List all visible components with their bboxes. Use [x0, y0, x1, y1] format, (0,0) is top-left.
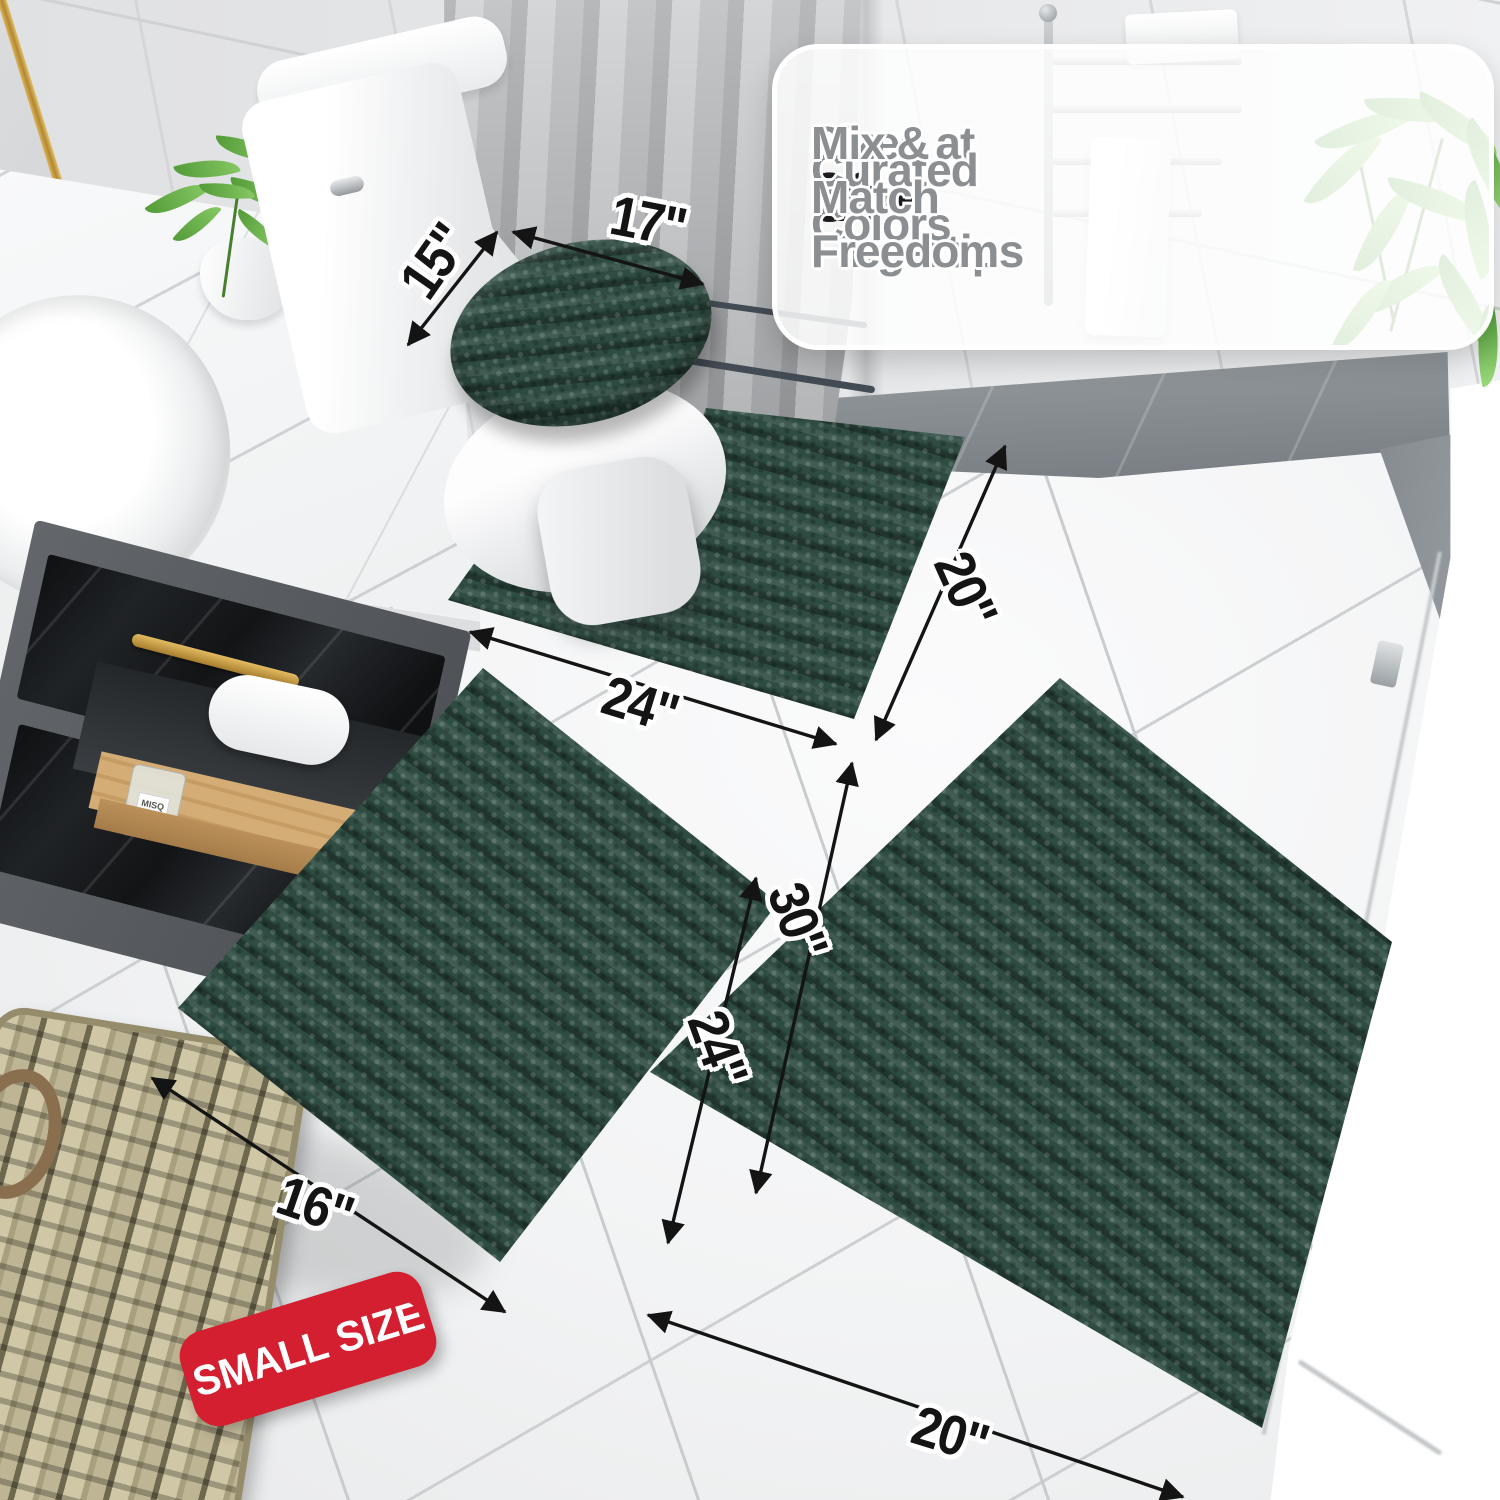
- product-infographic: MISQ 15" 17" 24" 2: [0, 0, 1500, 1500]
- towel-rack-knob: [1039, 4, 1057, 22]
- dimension-label-lid-width: 17": [605, 182, 691, 260]
- toilet-pedestal: [530, 450, 707, 632]
- callout-text: Mix & Match Freedom: [811, 116, 998, 278]
- feature-callout-box: 20+ Sizes at Your Fingertips 30+ Curated…: [772, 44, 1494, 350]
